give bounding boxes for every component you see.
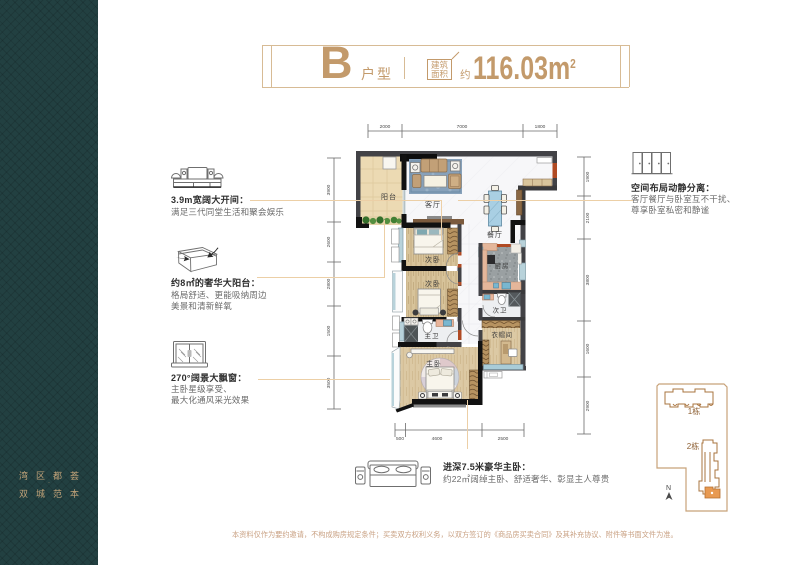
svg-text:2500: 2500 [498, 436, 509, 442]
svg-text:2000: 2000 [380, 124, 391, 130]
svg-text:N: N [666, 485, 671, 492]
svg-text:7000: 7000 [457, 124, 468, 130]
svg-text:厨房: 厨房 [495, 261, 510, 270]
svg-text:客厅: 客厅 [425, 200, 441, 209]
svg-text:2900: 2900 [585, 400, 591, 411]
svg-text:4600: 4600 [432, 436, 443, 442]
svg-text:3800: 3800 [585, 274, 591, 285]
svg-text:1800: 1800 [535, 124, 546, 130]
svg-text:2栋: 2栋 [687, 441, 699, 451]
svg-text:主卧: 主卧 [426, 359, 442, 368]
svg-text:主卫: 主卫 [425, 331, 440, 340]
svg-text:阳台: 阳台 [381, 192, 397, 201]
svg-text:衣帽间: 衣帽间 [492, 330, 513, 339]
svg-text:3500: 3500 [326, 377, 332, 388]
svg-text:1500: 1500 [326, 325, 332, 336]
svg-text:餐厅: 餐厅 [487, 230, 503, 239]
svg-text:次卫: 次卫 [493, 306, 508, 315]
svg-text:次卧: 次卧 [425, 255, 441, 264]
svg-text:1600: 1600 [585, 343, 591, 354]
svg-text:3900: 3900 [326, 184, 332, 195]
svg-text:次卧: 次卧 [425, 279, 441, 288]
svg-text:2600: 2600 [326, 236, 332, 247]
svg-text:1900: 1900 [585, 171, 591, 182]
svg-text:2800: 2800 [326, 278, 332, 289]
svg-text:500: 500 [396, 436, 404, 442]
svg-text:1栋: 1栋 [688, 406, 700, 416]
svg-text:2100: 2100 [585, 212, 591, 223]
